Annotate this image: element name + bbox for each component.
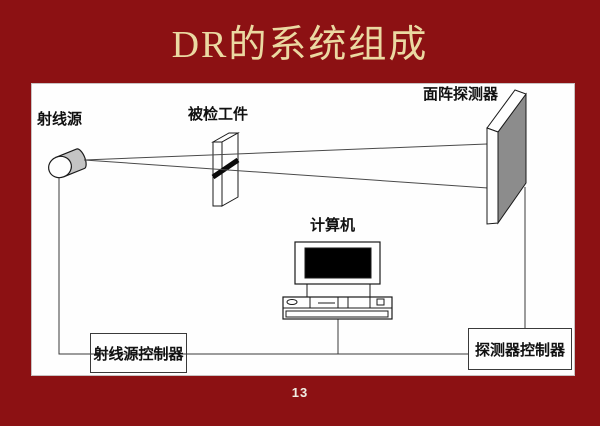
ray-source-label: 射线源	[37, 112, 82, 127]
ray-source-controller-box: 射线源控制器	[90, 333, 187, 373]
ray-source-cylinder	[45, 147, 88, 181]
source-to-controller-line	[59, 178, 468, 354]
beam-line-top	[84, 144, 487, 160]
page-number: 13	[0, 385, 600, 400]
diagram-panel: 射线源 被检工件 面阵探测器 计算机 射线源控制器 探测器控制器	[32, 84, 574, 375]
detector-slab	[487, 90, 526, 224]
beam-line-bottom	[84, 160, 488, 188]
detector-controller-label: 探测器控制器	[475, 339, 565, 360]
detector-controller-box: 探测器控制器	[468, 328, 572, 370]
workpiece-label: 被检工件	[188, 107, 248, 122]
slide-title: DR的系统组成	[0, 13, 600, 68]
detector-label: 面阵探测器	[423, 87, 498, 102]
case-switch	[377, 299, 384, 305]
case-vent	[286, 311, 388, 317]
slide: DR的系统组成	[0, 0, 600, 426]
detector-front-face	[487, 128, 498, 224]
computer-drawing	[283, 242, 392, 319]
monitor-stand	[307, 284, 370, 297]
ray-source-controller-label: 射线源控制器	[93, 343, 183, 364]
power-button	[287, 300, 297, 305]
monitor-screen	[305, 248, 371, 278]
computer-label: 计算机	[310, 218, 355, 233]
